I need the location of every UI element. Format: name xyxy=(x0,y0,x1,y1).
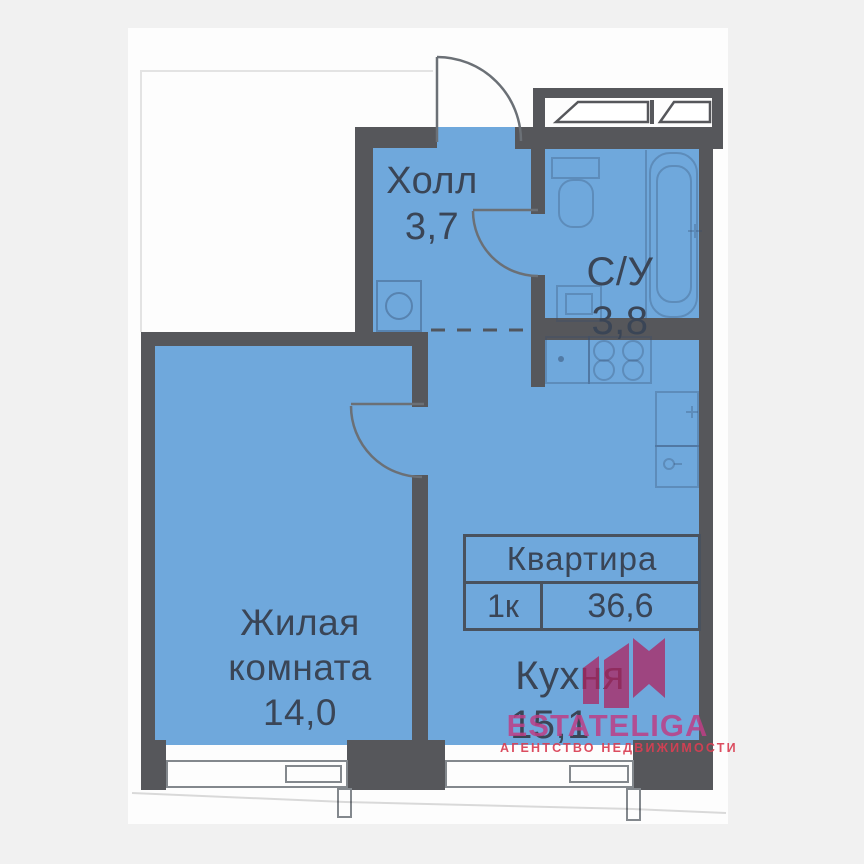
plan-detail-overlay xyxy=(0,0,864,864)
watermark-brand: ESTATELIGA xyxy=(500,708,715,744)
living-room-area: 14,0 xyxy=(180,690,420,735)
hall-area: 3,7 xyxy=(357,204,507,250)
estateliga-logo-icon xyxy=(575,634,667,712)
vent-shaft-icon xyxy=(556,100,710,124)
living-room-name: Жилая комната xyxy=(228,602,371,688)
summary-rooms-count: 1к xyxy=(466,584,543,628)
entry-door-icon xyxy=(437,57,521,142)
hall-label: Холл 3,7 xyxy=(357,158,507,251)
bathroom-area: 3,8 xyxy=(545,297,695,346)
sill-lines xyxy=(132,793,726,813)
living-room-door-icon xyxy=(351,404,424,477)
apartment-summary-table: Квартира 1к 36,6 xyxy=(463,534,701,631)
toilet-icon xyxy=(552,158,599,227)
summary-total-area: 36,6 xyxy=(543,584,698,628)
hall-name: Холл xyxy=(386,160,478,202)
living-room-label: Жилая комната 14,0 xyxy=(180,600,420,735)
watermark-tagline: АГЕНТСТВО НЕДВИЖИМОСТИ xyxy=(500,741,715,755)
window-kitchen-icon xyxy=(446,761,633,787)
washing-machine-icon xyxy=(377,281,421,331)
kitchen-counter-icon xyxy=(656,392,698,487)
bathroom-name: С/У xyxy=(587,250,654,294)
bathroom-label: С/У 3,8 xyxy=(545,248,695,346)
summary-title: Квартира xyxy=(466,537,698,584)
floor-plan-canvas: Холл 3,7 С/У 3,8 Жилая комната 14,0 Кухн… xyxy=(0,0,864,864)
window-living-room-icon xyxy=(167,761,347,787)
